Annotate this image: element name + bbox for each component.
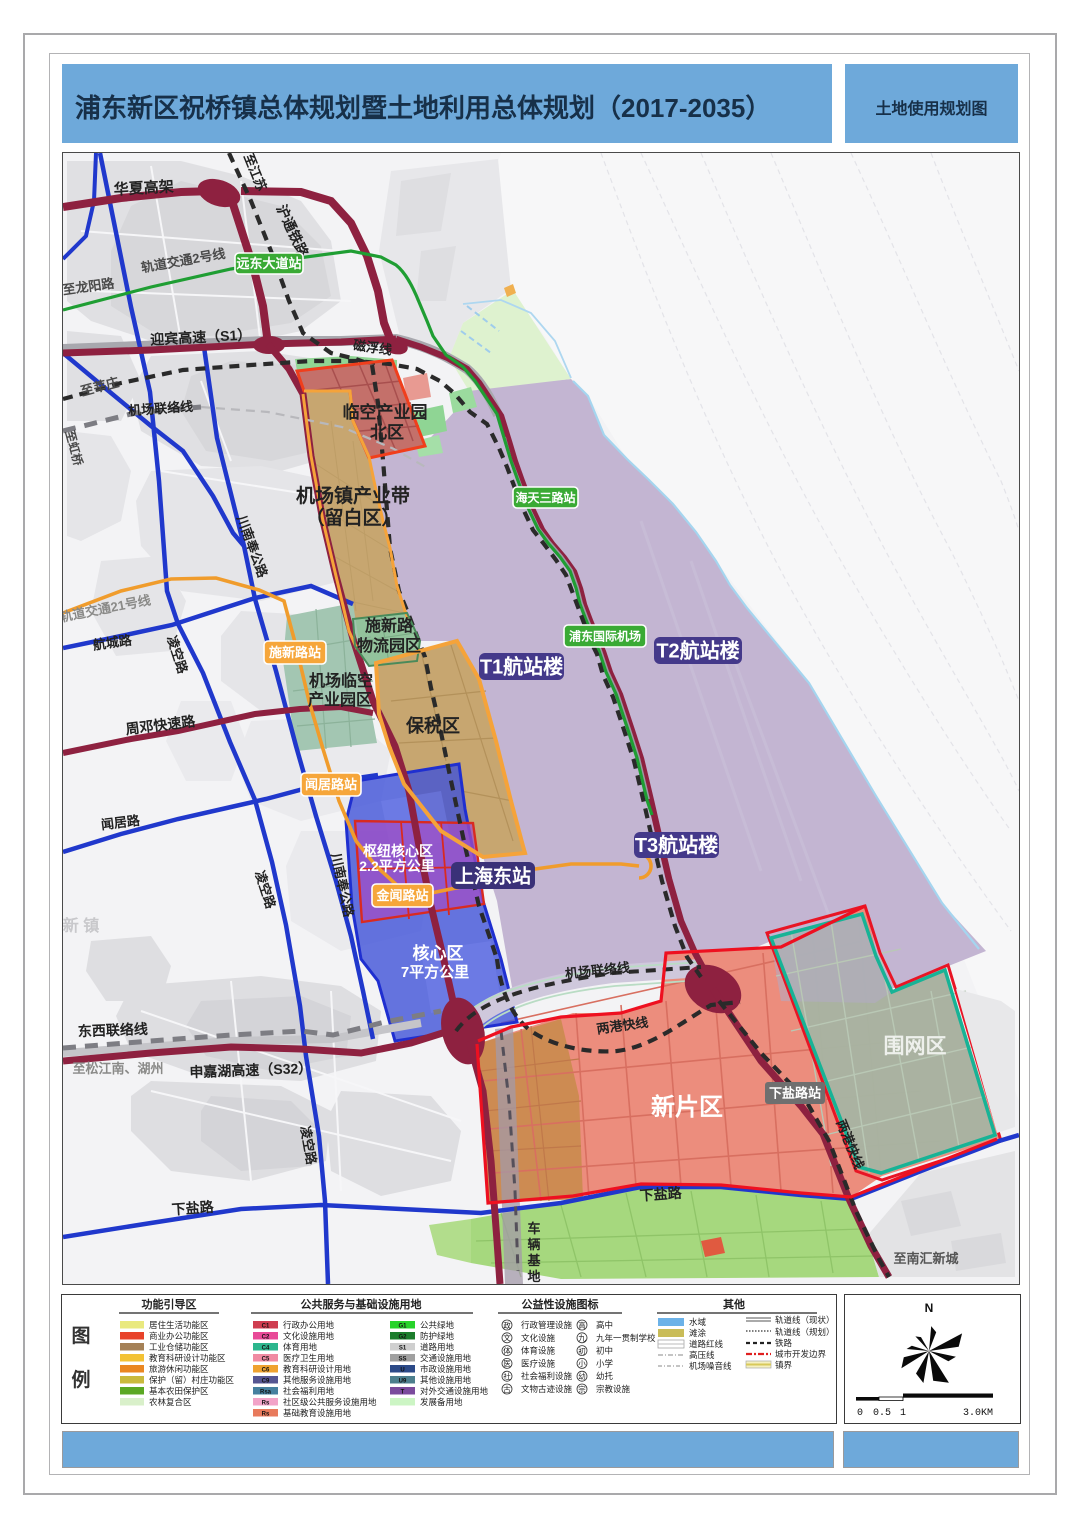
svg-text:围网区: 围网区 (884, 1035, 947, 1058)
svg-text:文化设施用地: 文化设施用地 (283, 1331, 335, 1341)
svg-text:宗: 宗 (578, 1384, 586, 1394)
svg-text:高压线: 高压线 (689, 1350, 715, 1360)
svg-text:行政管理设施: 行政管理设施 (521, 1320, 573, 1330)
svg-text:文物古迹设施: 文物古迹设施 (521, 1384, 573, 1394)
svg-text:机场临空: 机场临空 (309, 671, 373, 690)
svg-text:下盐路站: 下盐路站 (769, 1086, 821, 1101)
svg-text:居住生活功能区: 居住生活功能区 (149, 1320, 209, 1330)
svg-text:医疗卫生用地: 医疗卫生用地 (283, 1353, 335, 1363)
svg-text:G2: G2 (398, 1334, 407, 1340)
svg-text:小学: 小学 (596, 1358, 614, 1368)
svg-text:体: 体 (503, 1345, 511, 1355)
svg-text:社会福利设施: 社会福利设施 (521, 1371, 573, 1381)
svg-text:滩涂: 滩涂 (689, 1328, 707, 1338)
svg-text:社区级公共服务设施用地: 社区级公共服务设施用地 (283, 1397, 377, 1407)
svg-text:商业办公功能区: 商业办公功能区 (149, 1331, 209, 1341)
svg-text:保税区: 保税区 (405, 715, 460, 736)
svg-text:辆: 辆 (527, 1237, 540, 1252)
svg-text:教育科研设计用地: 教育科研设计用地 (283, 1364, 352, 1374)
svg-text:7平方公里: 7平方公里 (401, 963, 469, 981)
svg-text:功能引导区: 功能引导区 (142, 1297, 197, 1311)
svg-text:金闻路站: 金闻路站 (375, 888, 428, 903)
svg-text:其他设施用地: 其他设施用地 (420, 1375, 472, 1385)
svg-text:轨道线（规划）: 轨道线（规划） (775, 1327, 835, 1337)
svg-text:宗教设施: 宗教设施 (596, 1384, 631, 1394)
svg-text:海天三路站: 海天三路站 (515, 490, 575, 505)
svg-text:政: 政 (503, 1320, 511, 1330)
svg-text:下盐路: 下盐路 (171, 1198, 215, 1217)
svg-text:T1航站楼: T1航站楼 (480, 655, 563, 679)
svg-text:发展备用地: 发展备用地 (420, 1397, 463, 1407)
svg-text:基础教育设施用地: 基础教育设施用地 (283, 1408, 352, 1418)
svg-text:闻居路站: 闻居路站 (305, 777, 357, 792)
svg-text:医疗设施: 医疗设施 (521, 1358, 556, 1368)
svg-text:Rsa: Rsa (260, 1389, 272, 1395)
svg-text:基本农田保护区: 基本农田保护区 (149, 1386, 209, 1396)
svg-text:华夏高架: 华夏高架 (113, 177, 174, 198)
svg-text:T3航站楼: T3航站楼 (635, 833, 718, 857)
svg-text:高中: 高中 (596, 1320, 613, 1330)
svg-text:上海东站: 上海东站 (455, 864, 531, 887)
svg-text:3.0KM: 3.0KM (963, 1408, 993, 1419)
svg-text:C4: C4 (262, 1345, 270, 1351)
svg-text:对外交通设施用地: 对外交通设施用地 (420, 1386, 489, 1396)
svg-text:交通设施用地: 交通设施用地 (420, 1353, 472, 1363)
svg-text:远东大道站: 远东大道站 (236, 256, 301, 271)
svg-text:初: 初 (578, 1345, 586, 1355)
svg-text:社: 社 (503, 1371, 511, 1381)
svg-text:C5: C5 (262, 1356, 270, 1362)
svg-text:G1: G1 (398, 1323, 407, 1329)
svg-text:行政办公用地: 行政办公用地 (283, 1320, 335, 1330)
svg-text:镇界: 镇界 (775, 1360, 793, 1370)
svg-text:教育科研设计功能区: 教育科研设计功能区 (149, 1353, 226, 1363)
svg-text:其他服务设施用地: 其他服务设施用地 (283, 1375, 352, 1385)
svg-text:九: 九 (578, 1334, 586, 1343)
svg-text:0: 0 (857, 1408, 863, 1419)
svg-text:Rs: Rs (262, 1411, 270, 1417)
svg-text:枢纽核心区: 枢纽核心区 (363, 843, 433, 859)
svg-text:T: T (401, 1389, 405, 1395)
svg-text:C2: C2 (262, 1334, 270, 1340)
svg-text:公共服务与基础设施用地: 公共服务与基础设施用地 (301, 1297, 422, 1311)
svg-text:U: U (400, 1367, 404, 1373)
svg-text:初中: 初中 (596, 1346, 613, 1356)
svg-text:新 镇: 新 镇 (63, 916, 99, 935)
svg-text:城市开发边界: 城市开发边界 (775, 1349, 827, 1359)
svg-text:Rs: Rs (262, 1400, 270, 1406)
svg-text:市政设施用地: 市政设施用地 (420, 1364, 472, 1374)
svg-text:（留白区）: （留白区） (305, 506, 400, 529)
svg-text:U9: U9 (399, 1378, 407, 1384)
svg-text:铁路: 铁路 (775, 1338, 793, 1348)
svg-text:道路红线: 道路红线 (689, 1339, 724, 1349)
svg-text:核心区: 核心区 (413, 943, 464, 963)
svg-text:东西联络线: 东西联络线 (78, 1021, 149, 1039)
svg-text:农林复合区: 农林复合区 (149, 1397, 192, 1407)
svg-text:体育用地: 体育用地 (283, 1342, 318, 1352)
svg-text:医: 医 (503, 1359, 511, 1368)
svg-text:文化设施: 文化设施 (521, 1333, 556, 1343)
svg-text:九年一贯制学校: 九年一贯制学校 (596, 1333, 656, 1343)
svg-text:防护绿地: 防护绿地 (420, 1331, 455, 1341)
svg-text:其他: 其他 (723, 1297, 745, 1311)
svg-text:高: 高 (578, 1320, 586, 1330)
svg-text:图: 图 (71, 1325, 90, 1347)
svg-text:C6: C6 (262, 1367, 270, 1373)
svg-text:1: 1 (900, 1408, 906, 1419)
svg-text:公共绿地: 公共绿地 (420, 1320, 455, 1330)
svg-text:车: 车 (527, 1221, 540, 1236)
svg-text:0.5: 0.5 (873, 1408, 891, 1419)
svg-text:小: 小 (578, 1359, 586, 1368)
svg-text:工业仓储功能区: 工业仓储功能区 (149, 1342, 209, 1352)
svg-text:T2航站楼: T2航站楼 (656, 639, 739, 663)
svg-text:旅游休闲功能区: 旅游休闲功能区 (149, 1364, 209, 1374)
svg-text:至松江南、湖州: 至松江南、湖州 (72, 1061, 163, 1076)
svg-text:S1: S1 (399, 1345, 407, 1351)
svg-text:水域: 水域 (689, 1317, 707, 1327)
svg-text:临空产业园: 临空产业园 (343, 402, 428, 422)
svg-text:机场噪音线: 机场噪音线 (689, 1361, 732, 1371)
svg-text:施新路: 施新路 (365, 616, 414, 635)
svg-text:2.2平方公里: 2.2平方公里 (359, 858, 434, 874)
svg-text:轨道线（现状）: 轨道线（现状） (775, 1315, 835, 1325)
svg-text:保护（留）村庄功能区: 保护（留）村庄功能区 (149, 1375, 235, 1385)
svg-text:道路用地: 道路用地 (420, 1342, 455, 1352)
svg-text:地: 地 (527, 1269, 540, 1284)
svg-text:古: 古 (503, 1384, 511, 1394)
svg-text:N: N (925, 1301, 934, 1315)
svg-text:C1: C1 (262, 1323, 270, 1329)
svg-text:体育设施: 体育设施 (521, 1346, 556, 1356)
svg-text:SS: SS (398, 1356, 406, 1362)
svg-text:浦东国际机场: 浦东国际机场 (569, 628, 641, 643)
svg-text:北区: 北区 (370, 423, 404, 442)
svg-text:物流园区: 物流园区 (357, 636, 421, 655)
svg-text:基: 基 (526, 1253, 541, 1268)
svg-text:施新路站: 施新路站 (269, 645, 321, 660)
svg-text:新片区: 新片区 (651, 1093, 723, 1121)
svg-text:幼托: 幼托 (596, 1371, 614, 1381)
svg-text:C9: C9 (262, 1378, 270, 1384)
svg-text:机场镇产业带: 机场镇产业带 (296, 484, 410, 507)
svg-text:社会福利用地: 社会福利用地 (283, 1386, 335, 1396)
svg-text:下盐路: 下盐路 (639, 1184, 683, 1203)
svg-text:文: 文 (503, 1333, 511, 1343)
svg-text:例: 例 (71, 1368, 90, 1391)
svg-text:产业园区: 产业园区 (308, 690, 372, 709)
svg-text:至南汇新城: 至南汇新城 (893, 1251, 958, 1266)
svg-text:幼: 幼 (578, 1371, 586, 1381)
svg-text:公益性设施图标: 公益性设施图标 (522, 1297, 599, 1311)
